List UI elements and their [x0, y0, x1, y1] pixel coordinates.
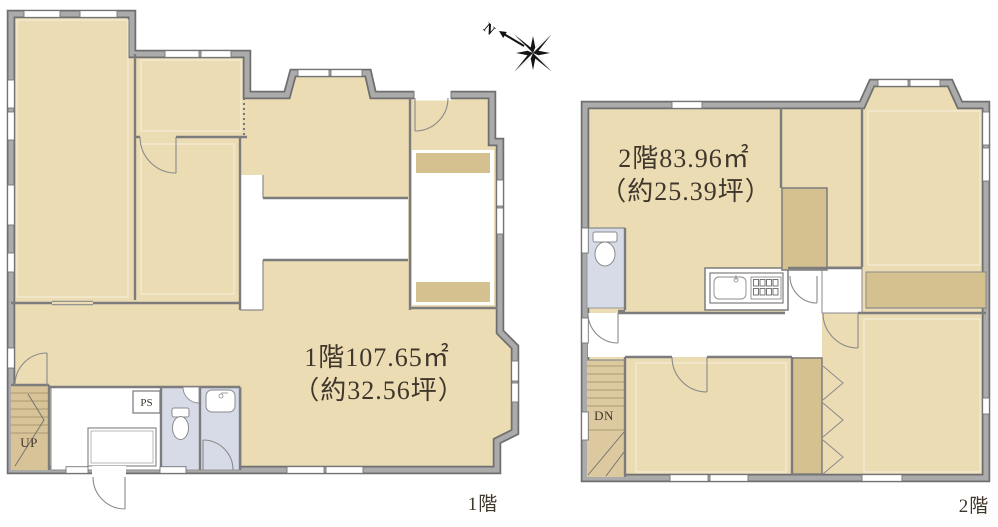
entrance-opening: [414, 90, 451, 101]
floor2-caption: 2階: [959, 495, 990, 517]
north-label: N: [480, 21, 497, 39]
hallway-band: [263, 198, 408, 260]
toilet-fixture-2f: [593, 232, 617, 266]
stairs-down-label: DN: [594, 408, 614, 423]
closet-right: [866, 272, 986, 308]
closet-top: [782, 188, 827, 270]
floor2-area-line2: （約25.39坪）: [600, 177, 772, 206]
pipe-space-label: PS: [140, 397, 152, 409]
kitchen-unit: [710, 273, 783, 303]
floor1-area-line2: （約32.56坪）: [293, 376, 465, 405]
hallway-2f: [588, 313, 822, 357]
bathtub: [88, 428, 156, 466]
floor2-area-line1: 2階83.96㎡: [618, 144, 750, 173]
back-door-opening: [92, 466, 126, 475]
floor1-caption: 1階: [468, 493, 499, 515]
washbasin-icon: [206, 390, 235, 412]
floor1-plan: 1階107.65㎡ （約32.56坪） UP PS 1階: [8, 11, 519, 515]
toilet-fixture-1f: [172, 408, 189, 440]
kitchen-sink-icon: [714, 277, 746, 299]
floorplan-image: 1階107.65㎡ （約32.56坪） UP PS 1階: [0, 0, 998, 527]
vestibule-2f: [822, 267, 862, 313]
compass-rose: N: [480, 21, 551, 72]
floor1-area-line1: 1階107.65㎡: [304, 343, 450, 372]
entrance-hall: [412, 150, 494, 305]
corridor-vertical: [240, 175, 263, 310]
closet-bottom: [792, 358, 822, 474]
entrance-step-upper: [416, 153, 490, 173]
entrance-step-lower: [416, 282, 490, 302]
floor2-plan: 2階83.96㎡ （約25.39坪） DN 2階: [582, 80, 990, 517]
stairs-up-label: UP: [20, 435, 38, 450]
